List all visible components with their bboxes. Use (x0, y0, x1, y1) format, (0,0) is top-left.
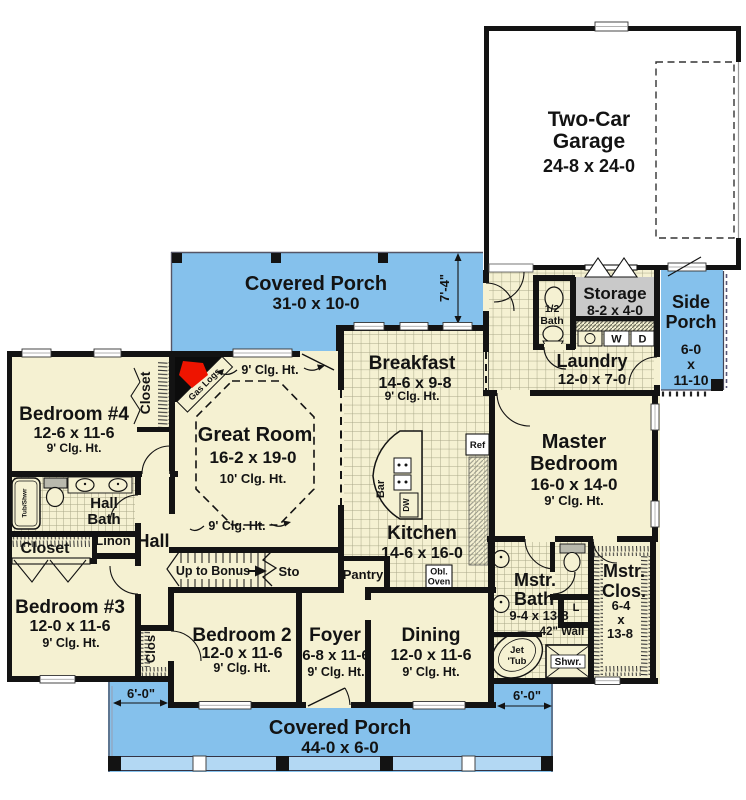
svg-text:DW: DW (402, 498, 411, 512)
svg-text:44-0 x 6-0: 44-0 x 6-0 (301, 738, 379, 757)
svg-text:Bar: Bar (375, 479, 387, 498)
svg-text:Obl.: Obl. (430, 567, 448, 577)
svg-text:Bedroom: Bedroom (530, 453, 618, 475)
svg-text:9' Clg. Ht.: 9' Clg. Ht. (47, 441, 102, 455)
svg-text:16-2 x 19-0: 16-2 x 19-0 (210, 448, 297, 467)
svg-text:6-0: 6-0 (681, 341, 701, 357)
svg-text:12-0 x 7-0: 12-0 x 7-0 (558, 371, 626, 388)
svg-text:Laundry: Laundry (556, 351, 627, 371)
svg-text:Bath: Bath (540, 315, 563, 327)
svg-text:16-0 x 14-0: 16-0 x 14-0 (531, 475, 618, 494)
svg-text:6-4: 6-4 (612, 598, 632, 613)
svg-text:31-0 x 10-0: 31-0 x 10-0 (273, 294, 360, 313)
svg-text:x: x (617, 612, 625, 627)
svg-text:Bath: Bath (514, 589, 554, 609)
svg-text:9' Clg. Ht.: 9' Clg. Ht. (42, 636, 99, 650)
svg-text:10' Clg. Ht.: 10' Clg. Ht. (220, 471, 287, 486)
svg-text:9' Clg. Ht.: 9' Clg. Ht. (544, 493, 603, 508)
svg-text:'Tub: 'Tub (508, 656, 527, 667)
svg-text:D: D (639, 334, 647, 346)
svg-text:Bedroom #4: Bedroom #4 (19, 404, 129, 425)
svg-text:Closet: Closet (21, 540, 71, 557)
svg-text:Up to Bonus: Up to Bonus (176, 564, 250, 578)
svg-text:Mstr.: Mstr. (603, 561, 645, 581)
svg-text:Bedroom #3: Bedroom #3 (15, 597, 125, 618)
svg-text:Great Room: Great Room (198, 424, 312, 446)
svg-text:6'-0": 6'-0" (513, 688, 541, 703)
svg-text:Kitchen: Kitchen (387, 523, 457, 544)
svg-text:Bedroom 2: Bedroom 2 (192, 625, 291, 646)
svg-text:Hall: Hall (136, 531, 169, 551)
svg-text:Linon: Linon (95, 533, 130, 548)
svg-text:7'-4": 7'-4" (437, 274, 452, 302)
svg-text:Storage: Storage (583, 284, 646, 303)
svg-text:12-0 x 11-6: 12-0 x 11-6 (30, 618, 111, 635)
svg-text:9' Clg. Ht.: 9' Clg. Ht. (208, 519, 265, 533)
svg-text:12-6 x 11-6: 12-6 x 11-6 (34, 425, 115, 442)
svg-text:Covered Porch: Covered Porch (269, 717, 411, 739)
svg-text:6-8 x 11-6: 6-8 x 11-6 (302, 647, 370, 664)
svg-text:x: x (687, 356, 695, 372)
svg-text:Dining: Dining (401, 625, 460, 646)
svg-text:Closet: Closet (137, 371, 153, 414)
svg-text:24-8 x 24-0: 24-8 x 24-0 (543, 156, 635, 176)
svg-text:6'-0": 6'-0" (127, 686, 155, 701)
svg-text:L: L (573, 602, 580, 614)
svg-text:Shwr.: Shwr. (555, 657, 582, 668)
svg-text:42" Wall: 42" Wall (540, 626, 585, 638)
svg-text:9' Clg. Ht.: 9' Clg. Ht. (241, 363, 298, 377)
svg-text:Tub/Shwr: Tub/Shwr (22, 488, 29, 518)
svg-text:Side: Side (672, 292, 710, 312)
svg-text:13-8: 13-8 (607, 626, 633, 641)
svg-text:12-0 x 11-6: 12-0 x 11-6 (391, 647, 472, 664)
svg-text:9' Clg. Ht.: 9' Clg. Ht. (307, 665, 364, 679)
svg-text:Pantry: Pantry (343, 567, 384, 582)
svg-text:Mstr.: Mstr. (514, 570, 556, 590)
svg-text:11-10: 11-10 (673, 372, 708, 388)
svg-text:Sto: Sto (279, 564, 300, 579)
svg-text:Hall: Hall (90, 495, 118, 512)
svg-text:1/2: 1/2 (545, 303, 560, 315)
svg-text:8-2 x 4-0: 8-2 x 4-0 (587, 302, 643, 318)
svg-text:Oven: Oven (428, 577, 451, 587)
svg-text:Breakfast: Breakfast (369, 353, 456, 374)
svg-text:14-6 x 16-0: 14-6 x 16-0 (381, 545, 463, 562)
svg-text:12-0 x 11-6: 12-0 x 11-6 (202, 645, 283, 662)
svg-text:Foyer: Foyer (309, 625, 361, 646)
svg-text:W: W (611, 334, 622, 346)
svg-text:Ref: Ref (470, 440, 486, 451)
svg-text:9' Clg. Ht.: 9' Clg. Ht. (385, 389, 440, 403)
svg-text:9' Clg. Ht.: 9' Clg. Ht. (402, 665, 459, 679)
svg-text:Clos: Clos (143, 635, 158, 663)
svg-text:Covered Porch: Covered Porch (245, 273, 387, 295)
svg-text:Two-Car: Two-Car (548, 108, 630, 131)
svg-text:Bath: Bath (87, 511, 120, 528)
svg-text:Jet: Jet (510, 645, 525, 656)
svg-text:Porch: Porch (665, 312, 716, 332)
svg-text:Master: Master (542, 431, 607, 453)
svg-text:9' Clg. Ht.: 9' Clg. Ht. (213, 661, 270, 675)
svg-text:Garage: Garage (553, 130, 625, 153)
svg-text:9-4 x 13-8: 9-4 x 13-8 (509, 608, 568, 623)
